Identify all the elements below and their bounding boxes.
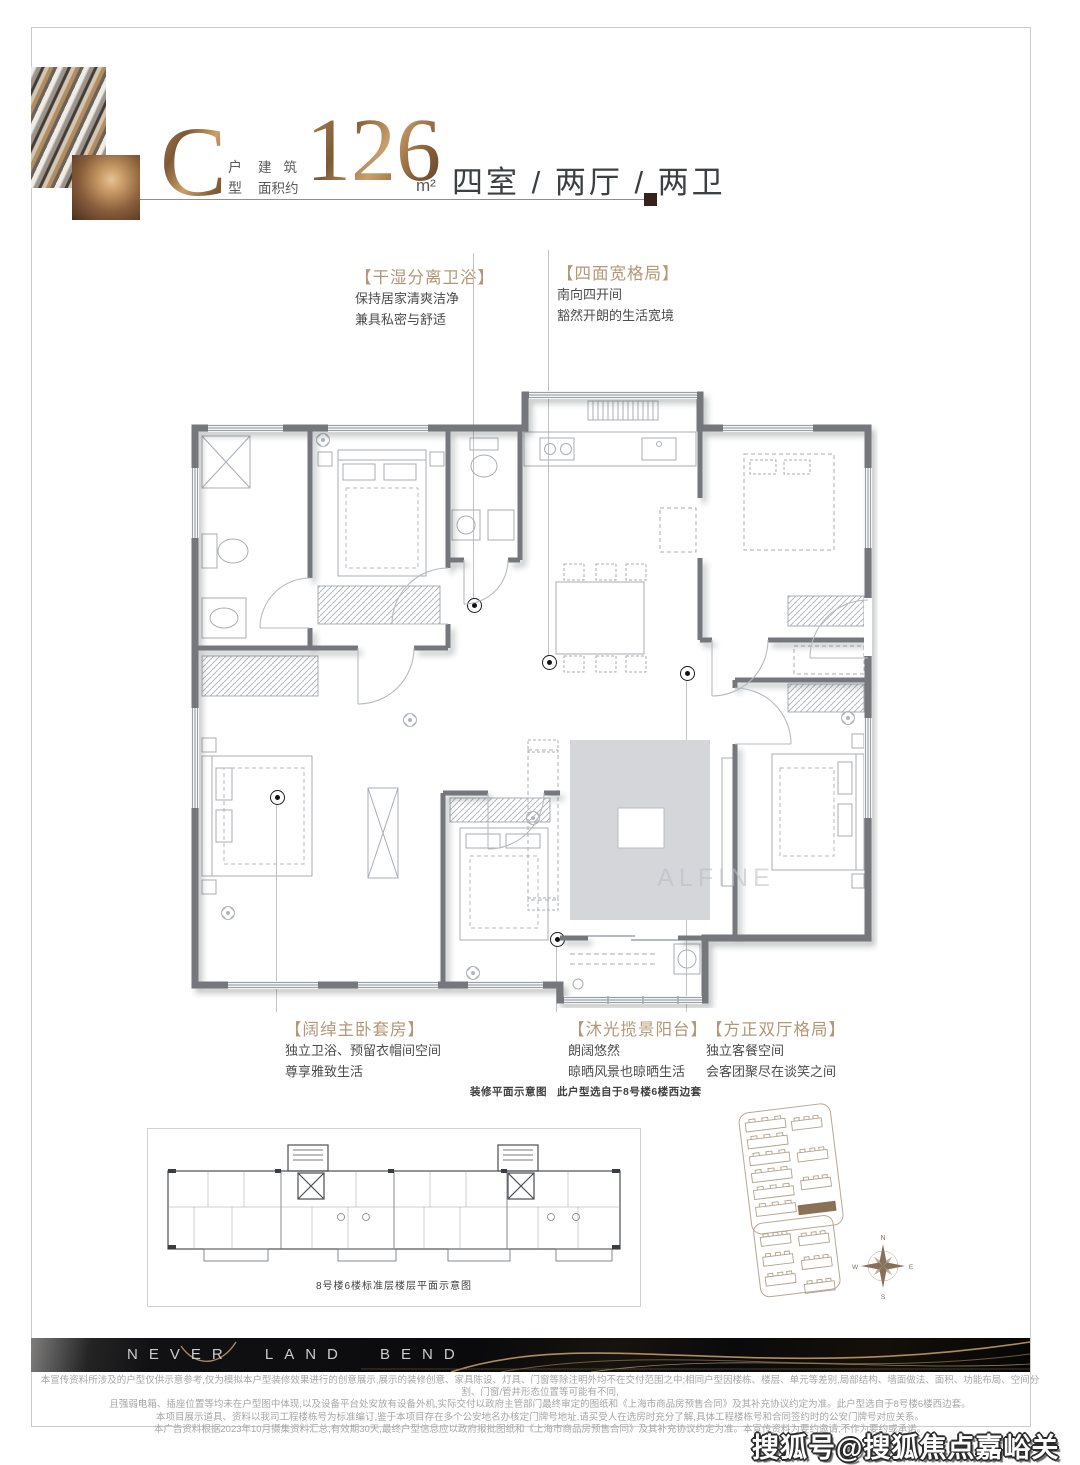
plan-watermark: ALFINE [657, 864, 775, 892]
unit-type-letter: C [160, 112, 227, 212]
brand-logotype: NEVER LAND BEND [127, 1338, 466, 1372]
sohu-watermark: 搜狐号@搜狐焦点嘉峪关站 [752, 1426, 1080, 1465]
area-label-line2: 面积约 [258, 178, 310, 199]
compass-s: S [881, 1294, 886, 1301]
site-parcel-south [753, 1215, 842, 1299]
callout-line: 独立客餐空间 [706, 1040, 886, 1061]
compass-w: W [852, 1264, 859, 1271]
plan-caption-left: 装修平面示意图 [470, 1084, 547, 1099]
callout-title: 【四面宽格局】 [557, 260, 737, 284]
callout-master-suite: 【阔绰主卧套房】 独立卫浴、预留衣帽间空间 尊享雅致生活 [285, 1016, 495, 1082]
callout-title: 【方正双厅格局】 [706, 1016, 886, 1040]
site-plan: N E S W [735, 1098, 1035, 1310]
windows-layer [191, 391, 872, 1004]
brochure-page: C 户 型 建筑 面积约 126 m² 四室 / 两厅 / 两卫 【干湿分离卫浴… [0, 0, 1080, 1465]
callout-line: 尊享雅致生活 [285, 1061, 495, 1082]
area-label-line1: 建筑 [258, 157, 310, 178]
compass-e: E [909, 1264, 914, 1271]
callout-wide-layout: 【四面宽格局】 南向四开间 豁然开朗的生活宽境 [557, 260, 737, 326]
callout-title: 【干湿分离卫浴】 [355, 264, 515, 288]
compass-n: N [880, 1235, 885, 1242]
texture-image-bronze [72, 155, 140, 220]
area-label: 建筑 面积约 [258, 157, 310, 199]
disclaimer-line: 本项目展示道具、资料以我司工程楼栋号为标准编订,鉴于本项目存在多个公安地名办核定… [40, 1412, 1040, 1424]
callout-line: 南向四开间 [557, 284, 737, 305]
ceiling-vent-icon [842, 712, 855, 725]
callout-line: 会客团聚尽在谈笑之间 [706, 1061, 886, 1082]
callout-double-hall: 【方正双厅格局】 独立客餐空间 会客团聚尽在谈笑之间 [706, 1016, 886, 1082]
ceiling-vent-icon [317, 434, 330, 447]
highlighted-building [798, 1201, 837, 1216]
compass-rose: N E S W [852, 1235, 914, 1301]
site-parcel-north [738, 1103, 844, 1235]
callout-line: 兼具私密与舒适 [355, 309, 515, 330]
plan-caption-right: 此户型选自于8号楼6楼西边套 [557, 1084, 702, 1099]
area-unit: m² [416, 176, 436, 196]
disclaimer-line: 且强弱电箱、插座位置等均未在户型图中体现,以及设备平台处安放有设备外机,实际交付… [40, 1399, 1040, 1411]
ceiling-vent-icon [222, 907, 235, 920]
disclaimer-line: 本宣传资料所涉及的户型仅供示意参考,仅为模拟本户型装修效果进行的创意展示,展示的… [40, 1375, 1040, 1399]
callout-line: 独立卫浴、预留衣帽间空间 [285, 1040, 495, 1061]
unit-type-char-1: 户 [228, 157, 244, 178]
unit-type-char-2: 型 [228, 178, 244, 199]
unit-type-label: 户 型 [228, 157, 244, 199]
rooms-layout-text: 四室 / 两厅 / 两卫 [452, 157, 726, 202]
callout-title: 【阔绰主卧套房】 [285, 1016, 495, 1040]
furniture-layer [202, 401, 864, 989]
building-plan-box: 8号楼6楼标准层楼层平面示意图 [147, 1128, 641, 1307]
footer-band: NEVER LAND BEND [31, 1338, 1030, 1372]
building-plan-caption: 8号楼6楼标准层楼层平面示意图 [148, 1277, 640, 1292]
callout-line: 豁然开朗的生活宽境 [557, 305, 737, 326]
ceiling-vent-icon [467, 967, 480, 980]
ceiling-vent-icon [404, 714, 417, 727]
coffee-table [618, 808, 664, 848]
callout-bathroom: 【干湿分离卫浴】 保持居家清爽洁净 兼具私密与舒适 [355, 264, 515, 330]
floor-plan: ALFINE [188, 388, 878, 1008]
callout-line: 保持居家清爽洁净 [355, 288, 515, 309]
